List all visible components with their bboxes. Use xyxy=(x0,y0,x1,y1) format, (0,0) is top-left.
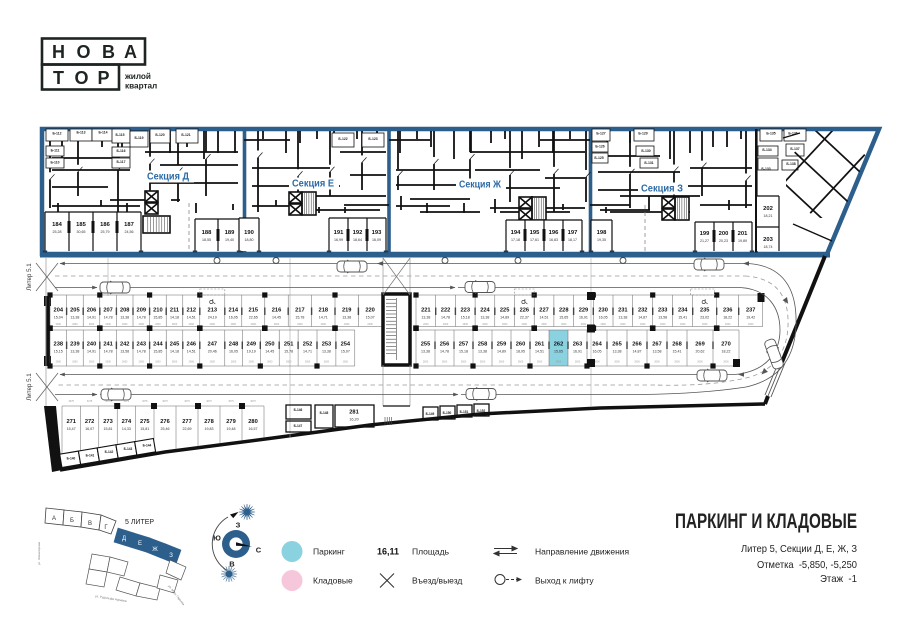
svg-text:2600: 2600 xyxy=(674,361,680,364)
svg-text:244: 244 xyxy=(153,342,163,348)
svg-text:14,78: 14,78 xyxy=(137,350,146,354)
svg-text:14,45: 14,45 xyxy=(265,350,274,354)
svg-text:19,19: 19,19 xyxy=(247,350,256,354)
svg-text:2600: 2600 xyxy=(443,323,449,326)
svg-text:2600: 2600 xyxy=(189,361,195,364)
svg-text:14,78: 14,78 xyxy=(137,316,146,320)
svg-text:15,07: 15,07 xyxy=(366,316,375,320)
svg-text:15,15: 15,15 xyxy=(54,350,63,354)
svg-text:14,78: 14,78 xyxy=(441,316,450,320)
svg-text:233: 233 xyxy=(658,308,668,314)
svg-text:2600: 2600 xyxy=(640,323,646,326)
svg-text:13,38: 13,38 xyxy=(480,316,489,320)
svg-text:235: 235 xyxy=(700,308,710,314)
svg-text:279: 279 xyxy=(226,419,236,425)
svg-text:261: 261 xyxy=(535,342,545,348)
svg-text:13,38: 13,38 xyxy=(478,350,487,354)
svg-text:262: 262 xyxy=(554,342,564,348)
svg-text:13,58: 13,58 xyxy=(653,350,662,354)
svg-text:Литер 5.1: Литер 5.1 xyxy=(26,373,33,401)
svg-text:14,33: 14,33 xyxy=(122,427,131,431)
svg-text:254: 254 xyxy=(341,342,351,348)
svg-text:271: 271 xyxy=(66,419,76,425)
svg-text:224: 224 xyxy=(480,308,490,314)
svg-text:Б-115: Б-115 xyxy=(115,133,124,137)
svg-text:14,87: 14,87 xyxy=(633,350,642,354)
svg-text:228: 228 xyxy=(559,308,569,314)
svg-text:19,35: 19,35 xyxy=(597,238,606,242)
svg-text:189: 189 xyxy=(225,230,235,236)
svg-text:216: 216 xyxy=(272,308,282,314)
svg-text:15,41: 15,41 xyxy=(678,316,687,320)
svg-text:198: 198 xyxy=(597,230,607,236)
svg-text:Секция З: Секция З xyxy=(641,184,683,195)
svg-text:Б-114: Б-114 xyxy=(98,131,107,135)
svg-text:2600: 2600 xyxy=(89,361,95,364)
svg-text:22,65: 22,65 xyxy=(249,316,258,320)
svg-text:2600: 2600 xyxy=(367,323,373,326)
svg-text:265: 265 xyxy=(612,342,622,348)
svg-text:19,83: 19,83 xyxy=(205,427,214,431)
svg-text:2600: 2600 xyxy=(122,323,128,326)
svg-text:25,28: 25,28 xyxy=(53,230,62,234)
svg-text:Б-130: Б-130 xyxy=(641,149,650,153)
svg-text:14,45: 14,45 xyxy=(272,316,281,320)
svg-text:Б-134: Б-134 xyxy=(762,148,771,152)
svg-text:204: 204 xyxy=(54,308,64,314)
svg-text:215: 215 xyxy=(249,308,259,314)
svg-text:О: О xyxy=(74,68,88,88)
svg-text:Б-146: Б-146 xyxy=(294,408,303,412)
svg-text:266: 266 xyxy=(632,342,642,348)
svg-text:2600: 2600 xyxy=(56,323,62,326)
svg-text:2600: 2600 xyxy=(56,361,62,364)
svg-text:2600: 2600 xyxy=(660,323,666,326)
svg-text:225: 225 xyxy=(500,308,510,314)
svg-text:2600: 2600 xyxy=(249,361,255,364)
svg-text:З: З xyxy=(169,553,173,559)
svg-text:20,46: 20,46 xyxy=(208,350,217,354)
svg-text:248: 248 xyxy=(229,342,239,348)
svg-text:250: 250 xyxy=(265,342,275,348)
svg-text:274: 274 xyxy=(122,419,132,425)
svg-text:272: 272 xyxy=(85,419,95,425)
svg-text:229: 229 xyxy=(579,308,589,314)
svg-text:211: 211 xyxy=(170,308,179,314)
svg-text:252: 252 xyxy=(303,342,313,348)
svg-text:197: 197 xyxy=(568,230,578,236)
svg-text:13,38: 13,38 xyxy=(421,350,430,354)
svg-text:18,17: 18,17 xyxy=(568,238,577,242)
svg-text:15,07: 15,07 xyxy=(341,350,350,354)
svg-text:2600: 2600 xyxy=(297,323,303,326)
svg-text:22,69: 22,69 xyxy=(183,427,192,431)
svg-text:234: 234 xyxy=(678,308,688,314)
svg-text:186: 186 xyxy=(100,222,110,228)
svg-text:2600: 2600 xyxy=(620,323,626,326)
svg-text:Направление движения: Направление движения xyxy=(535,547,630,557)
svg-text:15,47: 15,47 xyxy=(67,427,76,431)
svg-text:Н: Н xyxy=(52,42,65,62)
svg-text:Е: Е xyxy=(138,541,142,547)
svg-text:14,18: 14,18 xyxy=(170,350,179,354)
svg-text:Б-120: Б-120 xyxy=(155,133,164,137)
svg-text:2600: 2600 xyxy=(654,361,660,364)
svg-text:278: 278 xyxy=(204,419,214,425)
svg-text:З: З xyxy=(236,521,241,530)
svg-text:Секция Ж: Секция Ж xyxy=(459,180,502,191)
svg-text:Ж: Ж xyxy=(152,547,158,553)
svg-text:14,91: 14,91 xyxy=(87,316,96,320)
svg-text:2600: 2600 xyxy=(482,323,488,326)
svg-text:Т: Т xyxy=(53,68,64,88)
svg-text:206: 206 xyxy=(87,308,97,314)
svg-text:14,71: 14,71 xyxy=(319,316,328,320)
svg-text:2600: 2600 xyxy=(231,361,237,364)
svg-text:220: 220 xyxy=(365,308,375,314)
svg-text:2600: 2600 xyxy=(600,323,606,326)
svg-text:2600: 2600 xyxy=(155,323,161,326)
svg-text:18,22: 18,22 xyxy=(722,350,731,354)
svg-text:281: 281 xyxy=(349,410,359,416)
svg-text:240: 240 xyxy=(87,342,97,348)
svg-text:2600: 2600 xyxy=(556,361,562,364)
svg-text:245: 245 xyxy=(170,342,180,348)
svg-text:223: 223 xyxy=(461,308,471,314)
svg-text:Б-116: Б-116 xyxy=(116,149,125,153)
svg-text:2600: 2600 xyxy=(423,361,429,364)
svg-text:А: А xyxy=(124,42,137,62)
svg-text:13,58: 13,58 xyxy=(658,316,667,320)
svg-text:16,57: 16,57 xyxy=(249,427,258,431)
svg-text:255: 255 xyxy=(421,342,431,348)
svg-text:15,85: 15,85 xyxy=(153,350,162,354)
svg-text:17,18: 17,18 xyxy=(511,238,520,242)
svg-text:15,18: 15,18 xyxy=(459,350,468,354)
svg-text:Б-147: Б-147 xyxy=(294,424,303,428)
svg-text:2600: 2600 xyxy=(189,323,195,326)
svg-text:Б-142: Б-142 xyxy=(105,450,114,454)
svg-text:Б-150: Б-150 xyxy=(443,411,452,415)
svg-text:263: 263 xyxy=(573,342,583,348)
svg-text:242: 242 xyxy=(120,342,130,348)
svg-text:14,78: 14,78 xyxy=(104,316,113,320)
svg-text:25,79: 25,79 xyxy=(101,230,110,234)
svg-text:Р: Р xyxy=(97,68,109,88)
svg-text:Б-119: Б-119 xyxy=(134,136,143,140)
svg-text:2600: 2600 xyxy=(251,323,257,326)
svg-text:15,65: 15,65 xyxy=(559,316,568,320)
svg-text:210: 210 xyxy=(153,308,163,314)
svg-text:Б-123: Б-123 xyxy=(368,137,377,141)
svg-text:Б-152: Б-152 xyxy=(477,409,486,413)
svg-text:249: 249 xyxy=(247,342,257,348)
svg-text:2600: 2600 xyxy=(697,361,703,364)
svg-text:2600: 2600 xyxy=(172,361,178,364)
svg-text:3075: 3075 xyxy=(162,400,168,403)
svg-text:2600: 2600 xyxy=(502,323,508,326)
svg-text:2600: 2600 xyxy=(210,323,216,326)
svg-text:2600: 2600 xyxy=(561,323,567,326)
svg-text:257: 257 xyxy=(459,342,469,348)
svg-text:275: 275 xyxy=(140,419,150,425)
svg-text:195: 195 xyxy=(530,230,540,236)
svg-text:2600: 2600 xyxy=(344,323,350,326)
svg-text:247: 247 xyxy=(208,342,218,348)
svg-text:Б-131: Б-131 xyxy=(644,161,653,165)
svg-text:194: 194 xyxy=(511,230,521,236)
svg-text:Б-141: Б-141 xyxy=(86,453,95,457)
svg-text:15,78: 15,78 xyxy=(284,350,293,354)
svg-text:Литер 5.1: Литер 5.1 xyxy=(26,263,33,291)
svg-text:2600: 2600 xyxy=(72,323,78,326)
svg-text:270: 270 xyxy=(721,342,731,348)
svg-text:2600: 2600 xyxy=(594,361,600,364)
svg-text:13,38: 13,38 xyxy=(70,316,79,320)
svg-text:187: 187 xyxy=(124,222,134,228)
svg-text:Б-111: Б-111 xyxy=(51,149,60,153)
svg-text:208: 208 xyxy=(120,308,130,314)
svg-text:В: В xyxy=(102,42,115,62)
svg-text:14,18: 14,18 xyxy=(170,316,179,320)
svg-text:2600: 2600 xyxy=(723,361,729,364)
svg-text:222: 222 xyxy=(441,308,451,314)
svg-text:2600: 2600 xyxy=(725,323,731,326)
svg-text:273: 273 xyxy=(103,419,113,425)
svg-text:16,09: 16,09 xyxy=(372,238,381,242)
svg-text:19,40: 19,40 xyxy=(225,238,234,242)
svg-text:14,51: 14,51 xyxy=(535,350,544,354)
svg-text:258: 258 xyxy=(478,342,488,348)
svg-text:Б-137: Б-137 xyxy=(790,147,799,151)
svg-text:3075: 3075 xyxy=(142,400,148,403)
svg-text:Этаж -1: Этаж -1 xyxy=(820,573,857,585)
svg-text:2600: 2600 xyxy=(748,323,754,326)
svg-text:2600: 2600 xyxy=(343,361,349,364)
svg-text:С: С xyxy=(256,546,262,555)
svg-text:217: 217 xyxy=(295,308,305,314)
svg-text:184: 184 xyxy=(52,222,62,228)
svg-text:Б-126: Б-126 xyxy=(595,145,604,149)
svg-text:2600: 2600 xyxy=(267,361,273,364)
svg-text:2600: 2600 xyxy=(172,323,178,326)
svg-text:3075: 3075 xyxy=(87,400,93,403)
svg-text:Ю: Ю xyxy=(213,534,221,543)
svg-text:14,89: 14,89 xyxy=(500,316,509,320)
svg-text:185: 185 xyxy=(76,222,86,228)
svg-text:Б-140: Б-140 xyxy=(67,457,76,461)
svg-text:Кладовые: Кладовые xyxy=(313,576,353,586)
svg-text:Отметка -5,850, -5,250: Отметка -5,850, -5,250 xyxy=(757,559,857,571)
svg-text:203: 203 xyxy=(763,237,773,243)
svg-text:200: 200 xyxy=(719,231,729,237)
svg-text:193: 193 xyxy=(372,230,382,236)
svg-text:18,21: 18,21 xyxy=(764,214,773,218)
svg-text:Б-121: Б-121 xyxy=(181,133,190,137)
svg-text:3075: 3075 xyxy=(228,400,234,403)
svg-text:Б-122: Б-122 xyxy=(338,137,347,141)
svg-text:256: 256 xyxy=(440,342,450,348)
svg-text:2600: 2600 xyxy=(324,361,330,364)
svg-text:3075: 3075 xyxy=(206,400,212,403)
svg-text:16,05: 16,05 xyxy=(593,350,602,354)
svg-text:15,78: 15,78 xyxy=(295,316,304,320)
svg-text:219: 219 xyxy=(342,308,352,314)
svg-text:19,89: 19,89 xyxy=(738,239,747,243)
svg-text:О: О xyxy=(76,42,90,62)
svg-text:2600: 2600 xyxy=(274,323,280,326)
svg-text:16,11: 16,11 xyxy=(377,547,399,557)
svg-text:192: 192 xyxy=(353,230,363,236)
svg-text:Въезд/выезд: Въезд/выезд xyxy=(412,576,462,586)
svg-text:14,89: 14,89 xyxy=(497,350,506,354)
svg-text:Д: Д xyxy=(122,536,126,542)
svg-text:20,62: 20,62 xyxy=(696,350,705,354)
svg-text:2600: 2600 xyxy=(139,361,145,364)
svg-text:2600: 2600 xyxy=(442,361,448,364)
svg-text:14,51: 14,51 xyxy=(187,316,196,320)
svg-text:246: 246 xyxy=(187,342,197,348)
svg-text:16,20: 16,20 xyxy=(349,418,359,422)
svg-text:Б-113: Б-113 xyxy=(76,131,85,135)
svg-text:Б-127: Б-127 xyxy=(596,132,605,136)
svg-text:196: 196 xyxy=(549,230,559,236)
svg-text:21,27: 21,27 xyxy=(700,239,709,243)
svg-text:Литер 5, Секции Д, Е, Ж, З: Литер 5, Секции Д, Е, Ж, З xyxy=(741,543,857,555)
svg-text:2600: 2600 xyxy=(122,361,128,364)
svg-text:2600: 2600 xyxy=(72,361,78,364)
svg-text:232: 232 xyxy=(638,308,648,314)
svg-text:2600: 2600 xyxy=(89,323,95,326)
svg-text:13,38: 13,38 xyxy=(322,350,331,354)
svg-text:2600: 2600 xyxy=(541,323,547,326)
svg-text:213: 213 xyxy=(208,308,218,314)
svg-text:239: 239 xyxy=(70,342,80,348)
svg-text:15,65: 15,65 xyxy=(554,350,563,354)
svg-text:190: 190 xyxy=(244,230,254,236)
svg-text:Б: Б xyxy=(70,518,74,524)
svg-text:231: 231 xyxy=(618,308,628,314)
svg-text:14,51: 14,51 xyxy=(187,350,196,354)
svg-text:Б-135: Б-135 xyxy=(766,132,775,136)
svg-text:18,22: 18,22 xyxy=(723,316,732,320)
svg-text:14,51: 14,51 xyxy=(540,316,549,320)
svg-text:251: 251 xyxy=(284,342,294,348)
svg-text:212: 212 xyxy=(187,308,197,314)
svg-text:2600: 2600 xyxy=(105,361,111,364)
svg-text:Б-151: Б-151 xyxy=(460,410,469,414)
svg-text:18,55: 18,55 xyxy=(202,238,211,242)
svg-text:17,61: 17,61 xyxy=(530,238,539,242)
svg-text:238: 238 xyxy=(54,342,64,348)
svg-text:Б-133: Б-133 xyxy=(761,167,770,171)
svg-text:В: В xyxy=(88,521,92,527)
svg-text:14,91: 14,91 xyxy=(87,350,96,354)
svg-text:14,87: 14,87 xyxy=(638,316,647,320)
svg-text:16,91: 16,91 xyxy=(573,350,582,354)
svg-text:2600: 2600 xyxy=(463,323,469,326)
svg-text:18,74: 18,74 xyxy=(764,245,773,249)
svg-text:2600: 2600 xyxy=(105,323,111,326)
svg-text:24,19: 24,19 xyxy=(208,316,217,320)
svg-text:18,95: 18,95 xyxy=(516,350,525,354)
svg-text:2600: 2600 xyxy=(518,361,524,364)
svg-text:Б-129: Б-129 xyxy=(638,132,647,136)
svg-text:В: В xyxy=(229,560,235,569)
svg-text:2600: 2600 xyxy=(305,361,311,364)
svg-text:15,18: 15,18 xyxy=(461,316,470,320)
svg-text:14,78: 14,78 xyxy=(440,350,449,354)
svg-text:14,78: 14,78 xyxy=(104,350,113,354)
svg-text:2600: 2600 xyxy=(210,361,216,364)
svg-text:Б-144: Б-144 xyxy=(143,444,152,448)
svg-text:13,38: 13,38 xyxy=(120,316,129,320)
svg-text:276: 276 xyxy=(160,419,170,425)
svg-text:2600: 2600 xyxy=(480,361,486,364)
svg-text:243: 243 xyxy=(137,342,147,348)
svg-text:15,41: 15,41 xyxy=(673,350,682,354)
svg-text:3075: 3075 xyxy=(250,400,256,403)
svg-text:199: 199 xyxy=(700,231,710,237)
svg-text:16,05: 16,05 xyxy=(599,316,608,320)
svg-text:30,65: 30,65 xyxy=(77,230,86,234)
svg-text:19,42: 19,42 xyxy=(746,316,755,320)
svg-text:268: 268 xyxy=(672,342,682,348)
svg-text:267: 267 xyxy=(652,342,662,348)
svg-text:квартал: квартал xyxy=(125,82,157,91)
svg-text:201: 201 xyxy=(738,231,748,237)
svg-text:3075: 3075 xyxy=(69,400,75,403)
svg-text:202: 202 xyxy=(763,206,773,212)
svg-text:15,04: 15,04 xyxy=(54,316,63,320)
svg-text:Площадь: Площадь xyxy=(412,547,450,557)
svg-text:2600: 2600 xyxy=(575,361,581,364)
svg-text:237: 237 xyxy=(746,308,756,314)
svg-text:13,38: 13,38 xyxy=(70,350,79,354)
svg-text:Б-149: Б-149 xyxy=(426,412,435,416)
svg-text:ПАРКИНГ И КЛАДОВЫЕ: ПАРКИНГ И КЛАДОВЫЕ xyxy=(675,510,857,533)
svg-text:2600: 2600 xyxy=(581,323,587,326)
svg-text:22,37: 22,37 xyxy=(520,316,529,320)
svg-text:218: 218 xyxy=(319,308,329,314)
svg-text:2600: 2600 xyxy=(139,323,145,326)
svg-text:Б-143: Б-143 xyxy=(124,447,133,451)
svg-text:209: 209 xyxy=(137,308,147,314)
svg-text:2600: 2600 xyxy=(702,323,708,326)
svg-text:Б-110: Б-110 xyxy=(50,161,59,165)
svg-text:226: 226 xyxy=(520,308,530,314)
svg-text:2600: 2600 xyxy=(423,323,429,326)
svg-text:15,81: 15,81 xyxy=(140,427,149,431)
svg-text:24,56: 24,56 xyxy=(125,230,134,234)
svg-text:241: 241 xyxy=(103,342,113,348)
svg-text:18,80: 18,80 xyxy=(245,238,254,242)
svg-text:277: 277 xyxy=(182,419,192,425)
svg-text:259: 259 xyxy=(497,342,507,348)
svg-text:3075: 3075 xyxy=(184,400,190,403)
svg-text:253: 253 xyxy=(322,342,332,348)
svg-text:2600: 2600 xyxy=(522,323,528,326)
svg-text:Выход к лифту: Выход к лифту xyxy=(535,576,594,586)
svg-text:13,38: 13,38 xyxy=(613,350,622,354)
svg-text:269: 269 xyxy=(695,342,705,348)
svg-text:227: 227 xyxy=(539,308,549,314)
svg-text:Б-125: Б-125 xyxy=(594,156,603,160)
svg-text:Б-112: Б-112 xyxy=(52,132,61,136)
svg-text:25,46: 25,46 xyxy=(161,427,170,431)
svg-text:Б-117: Б-117 xyxy=(116,160,125,164)
svg-text:2600: 2600 xyxy=(461,361,467,364)
